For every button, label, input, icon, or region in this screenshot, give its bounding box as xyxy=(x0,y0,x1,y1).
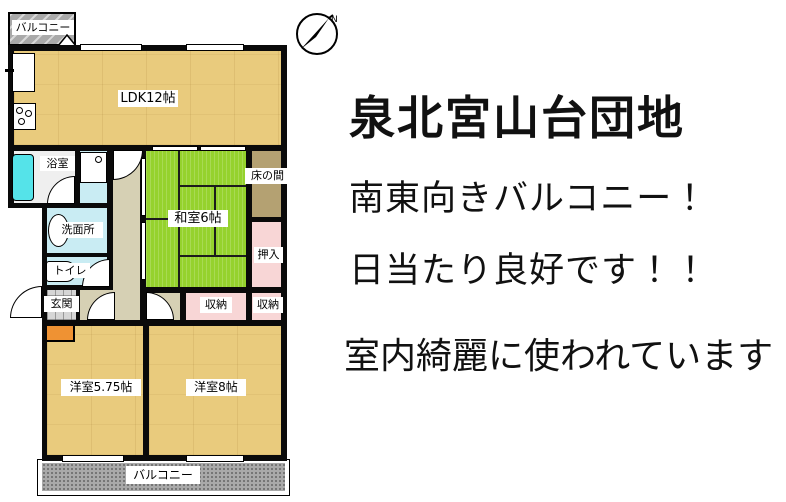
wall-segment xyxy=(42,253,110,257)
listing-line-condition: 室内綺麗に使われています xyxy=(344,327,773,379)
wall-segment xyxy=(140,287,287,293)
stove xyxy=(13,103,36,130)
toilet-label: トイレ xyxy=(50,263,90,278)
room-tokonoma xyxy=(252,151,281,217)
listing-line-sunlight: 日当たり良好です！！ xyxy=(349,242,709,293)
bath-label: 浴室 xyxy=(40,156,75,171)
window xyxy=(62,455,124,462)
sliding-door xyxy=(200,146,246,151)
window xyxy=(186,44,244,51)
sliding-door xyxy=(152,146,198,151)
storage-left-label: 収納 xyxy=(200,297,232,313)
kitchen-tap xyxy=(5,69,14,72)
burner-icon xyxy=(25,110,32,117)
door-arc-entrance xyxy=(10,286,42,318)
listing-title: 泉北宮山台団地 xyxy=(349,82,685,148)
tokonoma-label: 床の間 xyxy=(245,168,290,184)
kitchen-sink xyxy=(12,53,35,92)
wall-segment xyxy=(246,290,252,323)
wall-segment xyxy=(180,290,186,323)
window xyxy=(186,455,244,462)
storage-right-label: 収納 xyxy=(253,297,283,313)
burner-icon xyxy=(16,107,23,114)
wall-segment xyxy=(250,217,287,222)
bedroom-small-label: 洋室5.75帖 xyxy=(61,379,141,396)
balcony-bottom-label: バルコニー xyxy=(126,466,200,484)
entrance-label: 玄関 xyxy=(44,296,79,312)
listing-line-balcony: 南東向きバルコニー！ xyxy=(349,170,708,221)
bedroom-large-label: 洋室8帖 xyxy=(186,379,246,396)
washitsu-label: 和室6帖 xyxy=(168,210,228,227)
tatami-line xyxy=(178,255,246,257)
wall-segment xyxy=(8,45,287,51)
floorplan: バルコニー xyxy=(0,0,340,502)
wall-segment xyxy=(143,324,149,458)
burner-icon xyxy=(18,118,25,125)
drain-icon xyxy=(95,156,102,163)
wall-segment xyxy=(42,205,47,458)
ldk-label: LDK12帖 xyxy=(118,90,178,107)
oshiire-label: 押入 xyxy=(254,247,283,263)
compass-north-label: N xyxy=(331,15,338,25)
listing-flyer: バルコニー xyxy=(0,0,786,502)
description-block: 泉北宮山台団地 南東向きバルコニー！ 日当たり良好です！！ 室内綺麗に使われてい… xyxy=(344,0,786,502)
compass-icon: N xyxy=(294,10,342,58)
tatami-line xyxy=(178,185,246,187)
bathtub xyxy=(12,154,34,201)
sliding-door xyxy=(141,158,146,216)
balcony-top-label: バルコニー xyxy=(12,20,74,35)
washing-machine-pan xyxy=(80,152,107,183)
sliding-door xyxy=(141,222,146,280)
window xyxy=(80,44,142,51)
washroom-label: 洗面所 xyxy=(53,222,103,238)
